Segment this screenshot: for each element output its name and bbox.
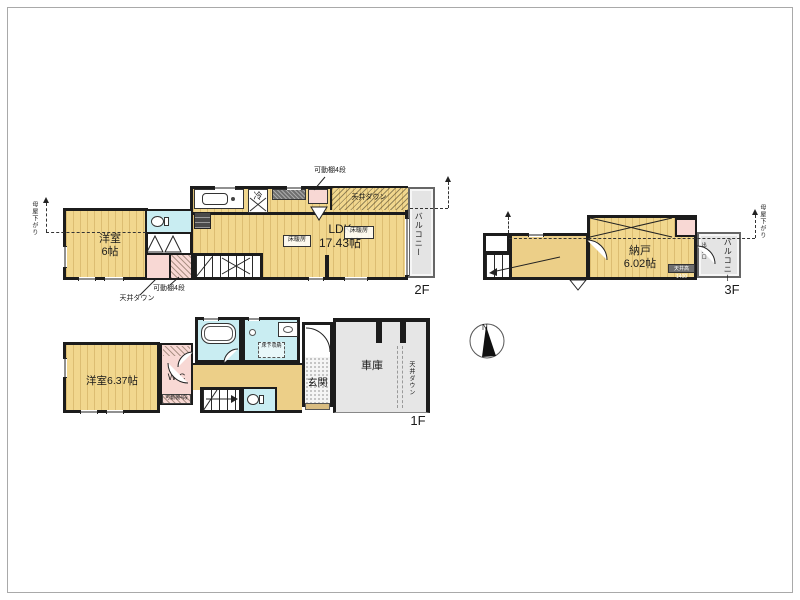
balcony-2f-label: バルコニー (414, 204, 423, 264)
floor-heating-badge-right: 床暖房 (344, 226, 374, 239)
kitchen-sink-icon (202, 193, 228, 205)
kitchen-counter (194, 189, 244, 209)
annotation-3f-left-arrow-icon (505, 211, 511, 217)
closet-2f-left (145, 253, 171, 280)
hall-3f (509, 233, 589, 280)
garage-pillar-a (376, 318, 382, 343)
ldk-size: 17.43帖 (305, 237, 375, 251)
stairs-2f (193, 253, 263, 280)
window-2f-b (104, 277, 124, 281)
yoshitsu-1f-label: 洋室6.37帖 (68, 375, 156, 387)
toilet-room-2f (145, 209, 193, 234)
garage-ceiling-line-b (402, 346, 403, 408)
genkan-label: 玄関 (304, 378, 331, 390)
yoshitsu-2f-name: 洋室 (85, 233, 135, 246)
window-1f-d (203, 317, 219, 321)
underfloor-storage-badge: 床下収納 (258, 342, 285, 358)
window-2f-e (214, 186, 236, 190)
moya-sagari-3f-vline (755, 215, 756, 238)
toilet-tank-1f (259, 395, 264, 404)
balcony-3f-label: バルコニー (723, 238, 732, 274)
window-2f-g (63, 246, 67, 268)
window-2f-f (286, 186, 302, 190)
annotation-2f-right-arrow-icon (445, 176, 451, 182)
garage-label: 車庫 (350, 360, 394, 373)
garage-pillar-b (400, 318, 406, 343)
window-2f-d (344, 277, 368, 281)
window-1f-a (80, 410, 98, 414)
annotation-2f-right-vline (448, 182, 449, 208)
faucet-icon (231, 197, 235, 201)
window-3f-a (528, 233, 544, 237)
shelf-top-label: 可動棚4段 (300, 167, 360, 175)
ceiling-down-top-label: 天井ダウン (334, 194, 404, 202)
garage-ceiling-line-a (397, 346, 398, 408)
floor-1f-label: 1F (404, 414, 432, 429)
wic-label: WIC (162, 372, 191, 382)
ceiling-down-1f-label: 天井ダウン (407, 358, 414, 398)
moya-sagari-2f-label: 母屋下がり (30, 196, 37, 240)
nando-name: 納戸 (615, 245, 665, 258)
washroom-1f: 床下収納 (242, 317, 300, 363)
nando-size: 6.02帖 (615, 258, 665, 271)
wall-stub-ldk (325, 255, 329, 280)
hall-1f-ext (277, 387, 302, 413)
moya-sagari-2f-line (46, 232, 146, 233)
bathtub-icon (201, 323, 236, 344)
toilet-icon-2f (151, 216, 164, 227)
moya-sagari-3f-line (509, 238, 755, 239)
bathroom-1f (195, 317, 242, 363)
void-room-3f (483, 233, 510, 254)
wic-shelf-top (163, 346, 190, 356)
window-2f-balcony (405, 218, 409, 276)
floor-3f-label: 3F (718, 283, 746, 298)
washer-pan-icon (249, 329, 256, 336)
window-1f-b (106, 410, 124, 414)
toilet-tank-2f (164, 217, 169, 226)
closet-3f (675, 218, 697, 237)
annotation-2f-right-line (410, 208, 448, 209)
hall-1f (193, 363, 302, 390)
stairs-1f (200, 387, 242, 413)
stove-icon (194, 212, 211, 229)
closet-2f-shelf (169, 253, 193, 280)
entry-step (305, 403, 330, 410)
floor-2f-label: 2F (408, 283, 436, 298)
window-2f-a (78, 277, 96, 281)
window-1f-c (63, 358, 67, 378)
porch-1f (302, 322, 333, 359)
low-ceiling-badge: 天井高1400 (668, 264, 695, 273)
yoshitsu-2f-size: 6帖 (85, 246, 135, 259)
shelf-bottom-label: 可動棚4段 (145, 285, 193, 293)
window-1f-e (248, 317, 260, 321)
movable-shelf-box-2f (308, 189, 328, 204)
toilet-room-1f (242, 387, 277, 413)
ceiling-down-bottom-label: 天井ダウン (112, 295, 162, 303)
window-2f-c (308, 277, 324, 281)
kitchen-cupboard-band (272, 189, 306, 200)
toilet-icon-1f (247, 394, 259, 405)
refrigerator-label: 冷 (248, 191, 268, 201)
moya-sagari-2f-vline (46, 203, 47, 232)
washbasin-icon (278, 322, 298, 337)
moya-sagari-3f-label: 母屋下がり (758, 199, 765, 243)
moya-sagari-2f-arrow-icon (43, 197, 49, 203)
washbasin-bowl-icon (283, 326, 293, 333)
annotation-3f-left-vline (508, 217, 509, 233)
floor-heating-badge-left: 床暖房 (283, 235, 311, 247)
shelf-1f-label: 可動棚4段 (161, 396, 192, 402)
balcony-door-label: 出入口 (700, 240, 706, 262)
